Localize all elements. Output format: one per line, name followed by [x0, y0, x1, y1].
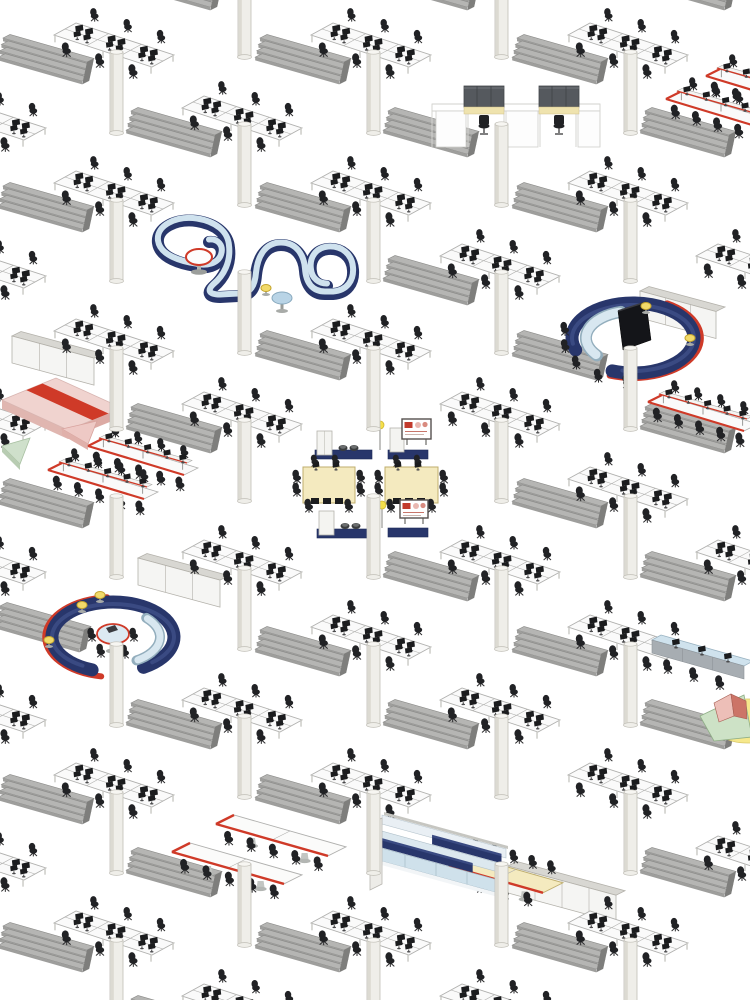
column	[367, 938, 381, 1000]
shelving-unit	[126, 0, 222, 10]
column	[110, 642, 124, 728]
column	[495, 714, 509, 800]
column	[238, 122, 252, 208]
column	[110, 494, 124, 580]
column	[624, 642, 638, 728]
column	[110, 938, 124, 1000]
shelving-unit	[383, 0, 479, 10]
bar-counter	[652, 635, 750, 690]
column	[495, 0, 509, 59]
column	[110, 198, 124, 284]
desk-cluster	[0, 821, 46, 892]
column	[624, 494, 638, 580]
column	[110, 346, 124, 432]
column	[624, 50, 638, 136]
column	[495, 418, 509, 504]
column	[624, 346, 638, 432]
desk-cluster	[182, 969, 302, 1000]
column	[367, 346, 381, 432]
column	[238, 0, 252, 59]
column	[624, 938, 638, 1000]
column	[238, 418, 252, 504]
column	[367, 494, 381, 580]
desk-cluster	[0, 673, 46, 744]
column	[495, 862, 509, 948]
column	[238, 566, 252, 652]
column	[495, 122, 509, 208]
desk-cluster	[696, 229, 750, 300]
column	[110, 790, 124, 876]
isometric-office-floor-plan	[0, 0, 750, 1000]
shelving-unit	[640, 0, 736, 10]
desk-cluster	[0, 81, 46, 152]
column	[624, 198, 638, 284]
column	[367, 642, 381, 728]
floor-plan-svg	[0, 0, 750, 1000]
column	[238, 714, 252, 800]
desk-cluster	[0, 229, 46, 300]
serpentine-sofa	[158, 218, 353, 313]
tiered-seating	[370, 812, 508, 897]
column	[367, 198, 381, 284]
column	[367, 790, 381, 876]
column	[624, 790, 638, 876]
column	[367, 50, 381, 136]
focus-booths	[432, 86, 600, 147]
desk-cluster	[0, 525, 46, 596]
column	[110, 50, 124, 136]
column	[495, 566, 509, 652]
column	[238, 270, 252, 356]
column	[238, 862, 252, 948]
desk-cluster	[440, 969, 560, 1000]
column	[495, 270, 509, 356]
